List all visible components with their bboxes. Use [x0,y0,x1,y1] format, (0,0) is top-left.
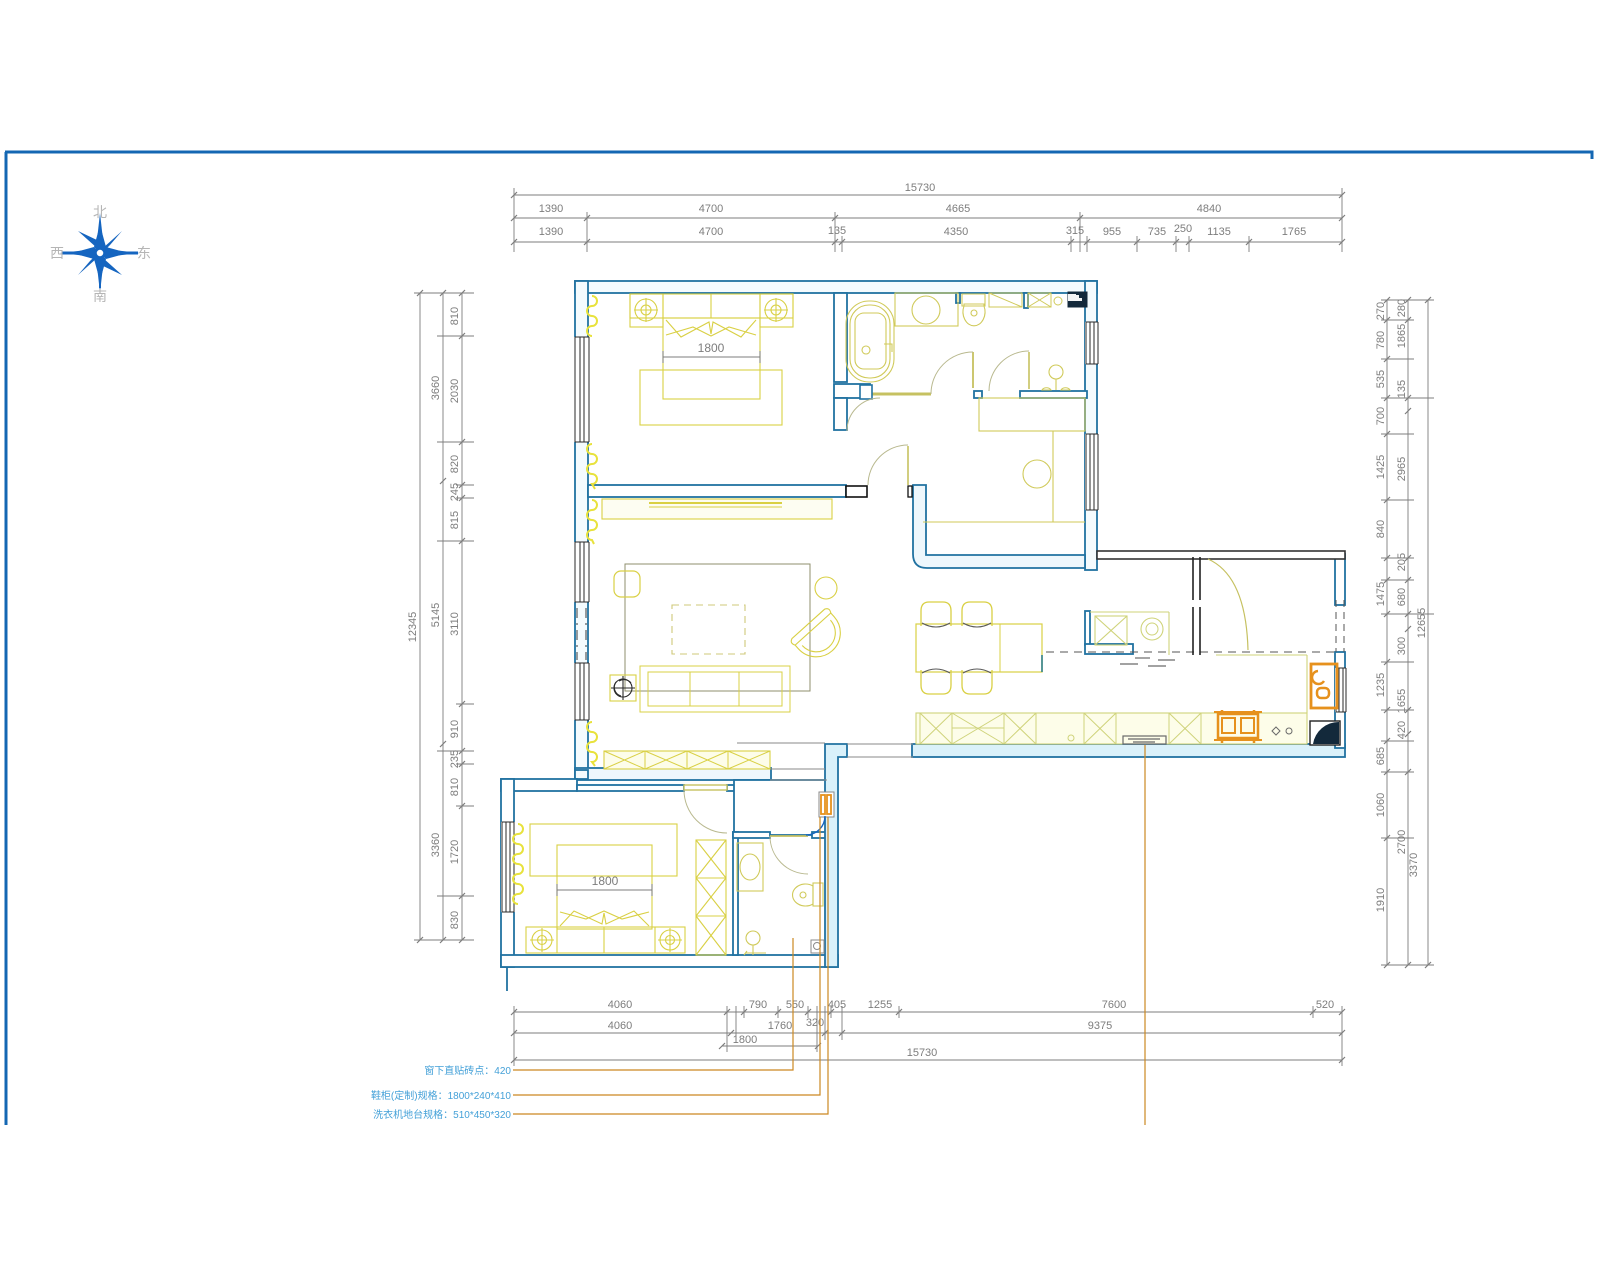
svg-text:5145: 5145 [430,603,442,627]
svg-text:250: 250 [1174,223,1192,235]
svg-text:1765: 1765 [1282,226,1306,238]
svg-text:235: 235 [449,750,461,768]
svg-text:135: 135 [1396,380,1408,398]
svg-text:820: 820 [449,455,461,473]
svg-text:1235: 1235 [1375,673,1387,697]
svg-text:2965: 2965 [1396,457,1408,481]
svg-text:南: 南 [93,288,107,304]
svg-text:315: 315 [1066,225,1084,237]
svg-text:405: 405 [828,999,846,1011]
svg-text:9375: 9375 [1088,1020,1112,1032]
svg-text:1390: 1390 [539,203,563,215]
svg-text:1255: 1255 [868,999,892,1011]
svg-text:12655: 12655 [1416,608,1428,639]
svg-text:205: 205 [1396,553,1408,571]
svg-text:西: 西 [50,245,64,261]
svg-text:830: 830 [449,911,461,929]
svg-text:1910: 1910 [1375,888,1387,912]
svg-text:4700: 4700 [699,226,723,238]
svg-text:1800: 1800 [592,874,619,888]
svg-text:420: 420 [1396,721,1408,739]
svg-text:1655: 1655 [1396,689,1408,713]
svg-text:680: 680 [1396,588,1408,606]
svg-text:7600: 7600 [1102,999,1126,1011]
svg-text:550: 550 [786,999,804,1011]
svg-text:135: 135 [828,225,846,237]
svg-text:320: 320 [806,1017,824,1029]
svg-text:810: 810 [449,307,461,325]
svg-text:4665: 4665 [946,203,970,215]
svg-text:1060: 1060 [1375,793,1387,817]
svg-text:780: 780 [1375,331,1387,349]
svg-text:300: 300 [1396,637,1408,655]
svg-text:4700: 4700 [699,203,723,215]
svg-text:815: 815 [449,511,461,529]
svg-text:1800: 1800 [733,1034,757,1046]
svg-text:840: 840 [1375,520,1387,538]
svg-text:535: 535 [1375,370,1387,388]
svg-text:245: 245 [449,483,461,501]
svg-text:15730: 15730 [905,182,936,194]
svg-text:东: 东 [137,245,151,261]
svg-text:1425: 1425 [1375,455,1387,479]
svg-text:1720: 1720 [449,840,461,864]
svg-text:12345: 12345 [407,612,419,643]
svg-text:4060: 4060 [608,1020,632,1032]
svg-text:270: 270 [1375,302,1387,320]
svg-text:2700: 2700 [1396,830,1408,854]
svg-text:洗衣机地台规格：510*450*320: 洗衣机地台规格：510*450*320 [373,1108,511,1121]
svg-text:735: 735 [1148,226,1166,238]
svg-text:1390: 1390 [539,226,563,238]
svg-text:520: 520 [1316,999,1334,1011]
svg-text:4350: 4350 [944,226,968,238]
svg-text:15730: 15730 [907,1047,938,1059]
svg-text:4840: 4840 [1197,203,1221,215]
svg-text:910: 910 [449,720,461,738]
svg-text:700: 700 [1375,407,1387,425]
svg-text:3370: 3370 [1408,853,1420,877]
svg-text:北: 北 [93,204,107,220]
svg-text:280: 280 [1396,299,1408,317]
svg-text:3110: 3110 [449,612,461,636]
svg-text:4060: 4060 [608,999,632,1011]
svg-text:2030: 2030 [449,379,461,403]
svg-text:1135: 1135 [1207,226,1231,238]
svg-text:685: 685 [1375,747,1387,765]
svg-text:1865: 1865 [1396,324,1408,348]
svg-text:810: 810 [449,778,461,796]
svg-text:鞋柜(定制)规格：1800*240*410: 鞋柜(定制)规格：1800*240*410 [371,1089,511,1102]
svg-text:3360: 3360 [430,833,442,857]
svg-text:窗下直贴砖点：420: 窗下直贴砖点：420 [424,1064,511,1077]
svg-text:790: 790 [749,999,767,1011]
svg-text:955: 955 [1103,226,1121,238]
svg-text:1475: 1475 [1375,582,1387,606]
svg-text:1800: 1800 [698,341,725,355]
svg-text:1760: 1760 [768,1020,792,1032]
svg-text:3660: 3660 [430,376,442,400]
